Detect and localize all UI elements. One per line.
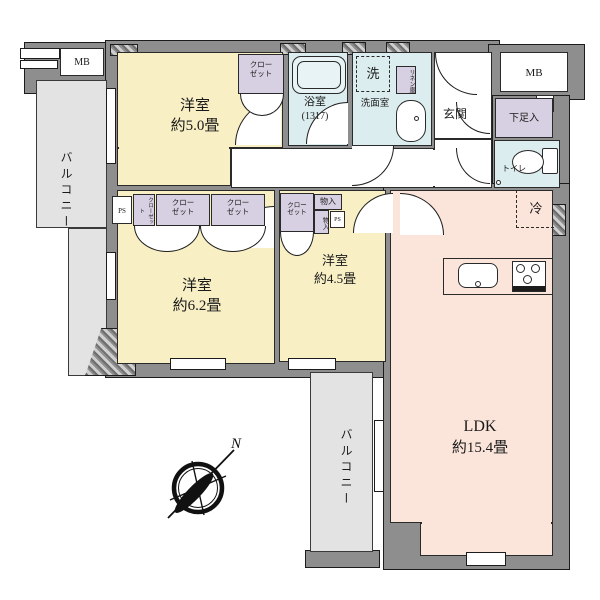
entrance-step-line	[434, 138, 492, 140]
entrance-name-text: 玄関	[443, 107, 467, 121]
bathroom-name: 浴室	[284, 96, 346, 112]
balcony-left-text: バルコニー	[59, 151, 73, 231]
toilet-detail-dot	[496, 180, 501, 185]
window-bedroom2-left	[106, 252, 116, 300]
window-bedroom1-left	[106, 88, 116, 164]
bedroom2-area-text: 約6.2畳	[173, 298, 222, 314]
balcony-left-label: バルコニー	[50, 126, 72, 256]
storage-label: 物入	[320, 197, 336, 206]
bathroom-size: (1317)	[284, 111, 346, 125]
room-bedroom1-patch	[119, 146, 229, 150]
window-slot-top-left-1	[20, 48, 60, 59]
ldk-name: LDK	[418, 418, 542, 440]
bathtub-inner	[297, 61, 341, 89]
refrigerator-label: 冷	[518, 194, 554, 224]
bedroom2-area: 約6.2畳	[138, 298, 256, 318]
bedroom3-name: 洋室	[294, 254, 376, 272]
entrance-name: 玄関	[432, 108, 478, 124]
ldk-area-text: 約15.4畳	[452, 440, 508, 456]
mb-label: MB	[525, 67, 542, 79]
bedroom2-name: 洋室	[138, 278, 256, 298]
floor-plan: クロー ゼット PS クローゼット クロー ゼット クロー ゼット クロー ゼッ…	[0, 0, 600, 600]
closet-label: ゼット	[239, 70, 283, 79]
toilet-tank	[542, 148, 558, 174]
linen-cabinet: リネン庫	[396, 66, 416, 94]
washroom-name-text: 洗面室	[361, 99, 390, 109]
closet-bedroom2-a: クロー ゼット	[156, 194, 210, 226]
linen-text: リネン庫	[408, 69, 414, 93]
window-ldk-bottom	[466, 552, 506, 566]
closet-label: ゼット	[212, 208, 264, 217]
bedroom1-area: 約5.0畳	[140, 118, 250, 138]
closet-label: クローゼット	[138, 197, 153, 225]
laundry-space: 洗	[356, 56, 390, 92]
compass: N	[150, 432, 250, 532]
room-corridor	[231, 148, 434, 188]
bedroom1-name: 洋室	[140, 98, 250, 118]
washbasin-drain	[414, 116, 419, 121]
bedroom1-area-text: 約5.0畳	[171, 118, 220, 134]
balcony-bottom-label: バルコニー	[330, 406, 352, 530]
kitchen-stove-grill	[513, 286, 545, 291]
mb-label: MB	[74, 57, 90, 68]
wall-balcony-bottom-strip	[305, 550, 380, 568]
bedroom2-name-text: 洋室	[182, 278, 212, 294]
bedroom3-area-text: 約4.5畳	[314, 271, 356, 286]
window-slot-top-left-2	[20, 60, 58, 69]
closet-label: ゼット	[157, 208, 209, 217]
ldk-area: 約15.4畳	[418, 440, 542, 460]
room-ldk-patch	[422, 521, 551, 525]
meter-box-left: MB	[60, 48, 104, 76]
shoe-cabinet: 下足入	[495, 98, 553, 138]
shoe-cabinet-label: 下足入	[509, 113, 539, 124]
toilet-label: トイレ	[494, 164, 534, 176]
stove-burner-3	[523, 275, 532, 284]
washbasin	[396, 100, 426, 142]
storage-bedroom3-top: 物入	[314, 194, 342, 210]
bedroom1-name-text: 洋室	[180, 98, 210, 114]
storage-bedroom3-side: 物入	[314, 210, 329, 234]
bathroom-name-text: 浴室	[304, 96, 326, 108]
ldk-name-text: LDK	[464, 418, 497, 435]
bedroom3-name-text: 洋室	[322, 253, 348, 268]
closet-bedroom1: クロー ゼット	[238, 54, 284, 94]
laundry-text: 洗	[366, 66, 379, 81]
kitchen-sink-drain	[475, 281, 481, 287]
compass-north-label: N	[230, 436, 242, 452]
storage-label: 物入	[321, 217, 328, 230]
toilet-text: トイレ	[502, 164, 526, 173]
closet-label: ゼット	[281, 209, 313, 216]
bathroom-size-text: (1317)	[302, 111, 329, 122]
pipe-shaft-bedroom3: PS	[330, 211, 345, 228]
room-ldk-main	[390, 190, 553, 523]
stove-burner-1	[516, 264, 525, 273]
meter-box-right: MB	[500, 52, 568, 92]
balcony-bottom-text: バルコニー	[339, 428, 353, 508]
closet-bedroom2-narrow: クローゼット	[133, 194, 155, 226]
window-ldk-balcony	[374, 420, 384, 492]
room-bedroom1-lower	[117, 148, 231, 186]
stove-burner-2	[531, 264, 540, 273]
closet-bedroom3: クロー ゼット	[280, 193, 314, 232]
corridor-entrance-opening	[432, 150, 436, 186]
refrigerator-text: 冷	[529, 201, 542, 216]
bedroom3-area: 約4.5畳	[294, 272, 376, 290]
window-bedroom3-bottom	[288, 358, 336, 370]
washroom-name: 洗面室	[350, 99, 400, 113]
ps-label: PS	[334, 217, 341, 223]
pipe-shaft-bedroom2: PS	[112, 196, 132, 224]
closet-bedroom2-b: クロー ゼット	[211, 194, 265, 226]
window-bedroom2-bottom	[170, 358, 226, 370]
ps-label: PS	[118, 207, 126, 215]
